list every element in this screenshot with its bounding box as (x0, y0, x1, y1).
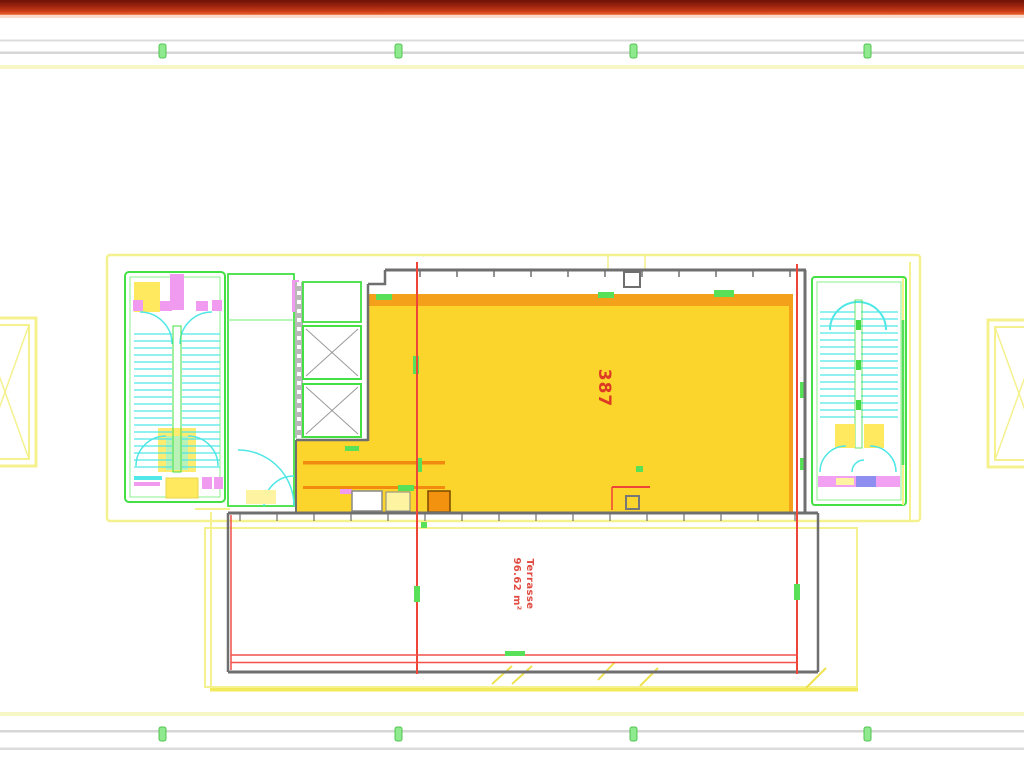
terrace-label: Terrasse 96.62 m² (511, 557, 535, 610)
terrace-name-text: Terrasse (524, 559, 535, 610)
bottom-rail-ticks (159, 727, 871, 741)
left-crop-marker (0, 318, 36, 466)
door-swing-arc (870, 446, 896, 472)
top-rail-ticks (159, 44, 871, 58)
elevator-shaft-2 (303, 384, 361, 437)
right-stair-core (812, 277, 906, 505)
elevator-lobby (303, 282, 361, 322)
bottom-guide-rail (0, 688, 1024, 750)
service-fixtures (340, 489, 450, 512)
header-bar (0, 0, 1024, 18)
hall-number-text: 387 (594, 369, 614, 408)
lobby-corridor (228, 274, 299, 506)
hall-fill (368, 294, 792, 512)
right-crop-marker (988, 320, 1024, 467)
hatched-wall (295, 282, 303, 438)
terrace-area-text: 96.62 m² (511, 557, 522, 610)
stair-bottom-fixtures (134, 477, 223, 498)
door-swing-arc (180, 312, 212, 344)
terrace: Terrasse 96.62 m² (231, 515, 800, 670)
terrace-boundary-hatches (492, 662, 826, 688)
elevator-shaft-1 (303, 326, 361, 379)
floor-plan-page: 387 (0, 0, 1024, 768)
elevator-column (295, 282, 361, 438)
door-swing-arc (820, 446, 846, 472)
terrace-survey-marks (414, 522, 800, 656)
left-stair-core (125, 272, 225, 502)
wall-notch-detail (624, 272, 640, 287)
main-hall: 387 (296, 290, 805, 512)
door-swing-arc (140, 312, 172, 344)
stair-door-magenta (170, 274, 184, 310)
hall-area-label: 387 (594, 369, 614, 408)
top-guide-rail (0, 40, 1024, 70)
